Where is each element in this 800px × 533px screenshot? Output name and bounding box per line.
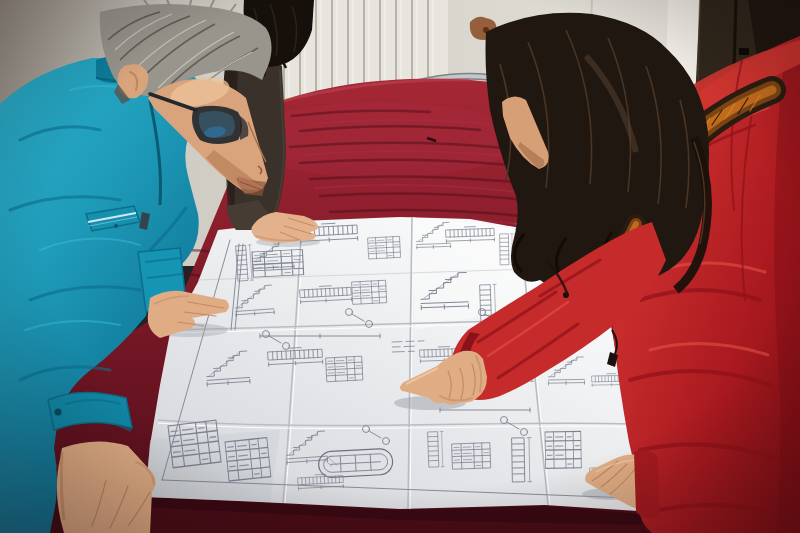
photo-scene — [0, 0, 800, 533]
vignette-overlay — [0, 0, 800, 533]
